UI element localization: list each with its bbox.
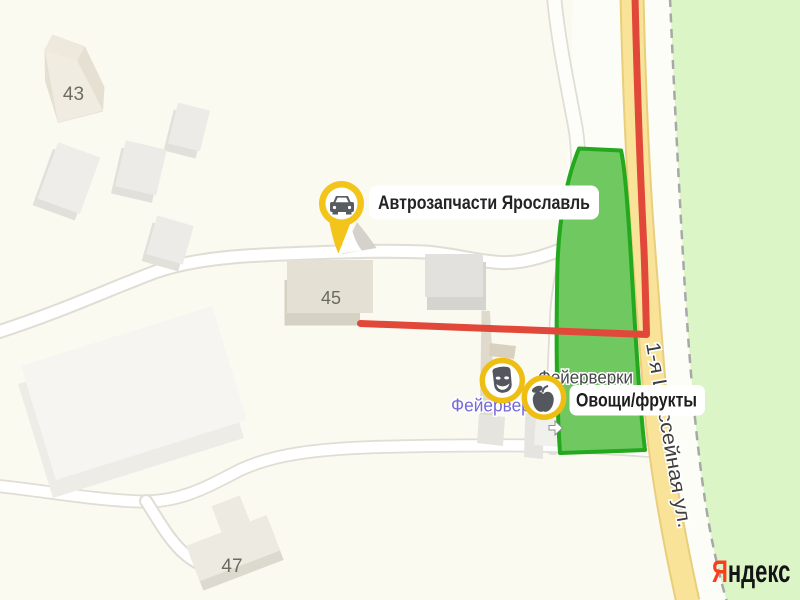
- svg-text:Автрозапчасти Ярославль: Автрозапчасти Ярославль: [378, 193, 590, 214]
- svg-text:43: 43: [63, 84, 84, 105]
- svg-text:47: 47: [221, 556, 242, 577]
- svg-text:45: 45: [321, 288, 341, 308]
- svg-text:Овощи/фрукты: Овощи/фрукты: [576, 391, 697, 412]
- svg-text:Яндекс: Яндекс: [712, 553, 790, 589]
